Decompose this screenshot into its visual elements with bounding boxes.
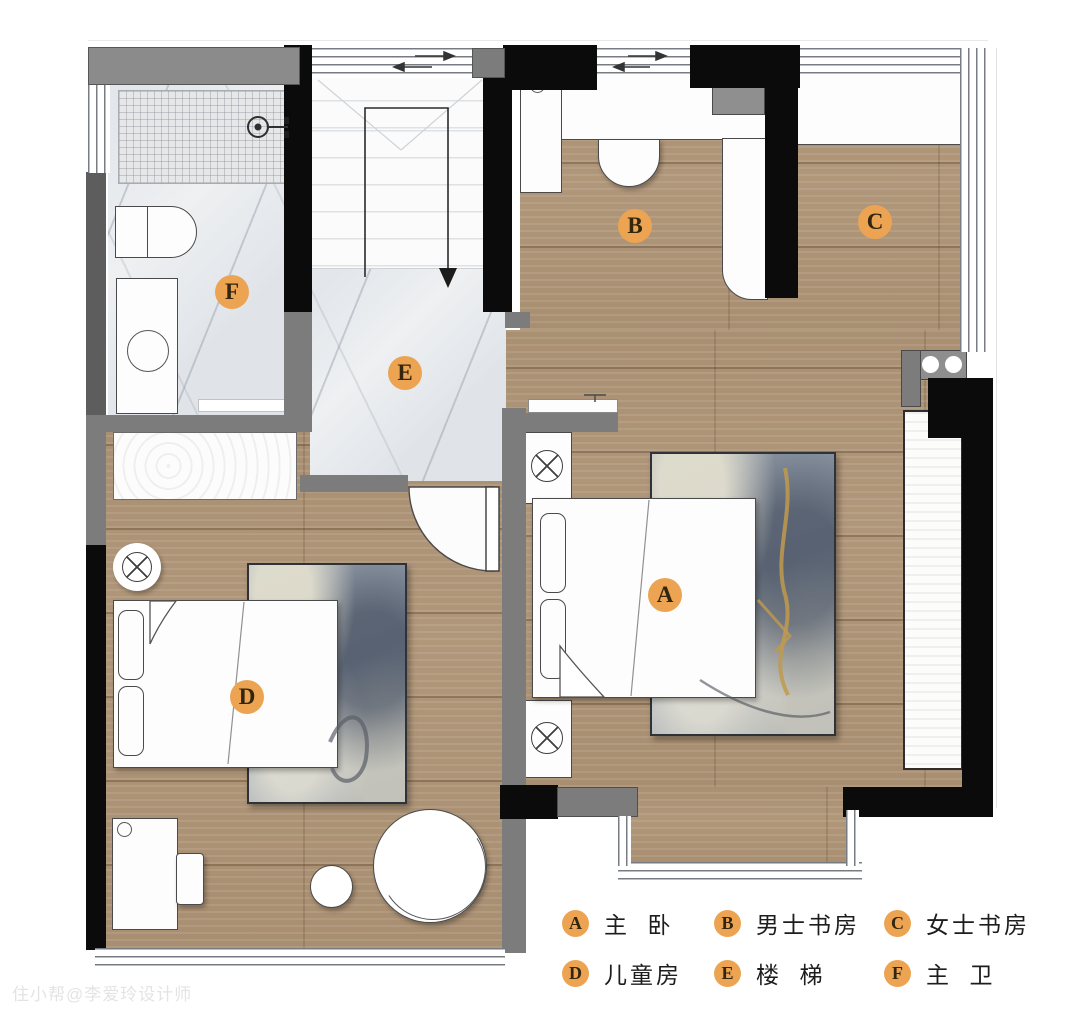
room-marker-childrens-room: D xyxy=(230,680,264,714)
legend-label: 主 卫 xyxy=(926,956,996,990)
window-stair-sliding xyxy=(312,48,472,74)
bay-window-right xyxy=(846,810,859,866)
legend-badge: C xyxy=(884,910,911,937)
legend-label: 男士书房 xyxy=(756,906,860,940)
legend-item-master-bedroom: A 主 卧 xyxy=(562,906,674,940)
bath-shelf xyxy=(198,399,294,412)
wall xyxy=(502,818,526,953)
wall-bedroom-divider xyxy=(502,408,526,788)
pillow xyxy=(118,686,144,756)
legend-item-childrens-room: D 儿童房 xyxy=(562,956,682,990)
legend-item-master-bathroom: F 主 卫 xyxy=(884,956,996,990)
legend-label: 楼 梯 xyxy=(756,956,826,990)
wall-landing-divider xyxy=(300,475,408,492)
stair-treads xyxy=(312,78,483,270)
pillow xyxy=(118,610,144,680)
stool xyxy=(310,865,353,908)
wall-post xyxy=(472,48,505,78)
room-marker-master-bedroom: A xyxy=(648,578,682,612)
sink-icon xyxy=(945,356,962,373)
bay-window-left xyxy=(618,816,631,866)
console-shelf xyxy=(528,399,618,413)
round-sink xyxy=(127,330,169,372)
wall xyxy=(525,413,618,432)
childrens-wardrobe xyxy=(113,432,297,500)
window-bathroom xyxy=(88,85,110,173)
room-marker-stairs: E xyxy=(388,356,422,390)
window-childrens-bottom xyxy=(95,948,505,972)
window-study-c-top xyxy=(797,48,983,74)
study-b-side-desk xyxy=(722,138,768,300)
desk-lamp-icon xyxy=(117,822,132,837)
window-study-c-right xyxy=(960,48,988,352)
lamp-icon xyxy=(531,722,563,754)
legend-badge: F xyxy=(884,960,911,987)
shower-area xyxy=(118,90,287,184)
pillow xyxy=(540,599,566,679)
wall xyxy=(500,785,558,819)
childrens-bed xyxy=(113,600,338,768)
toilet-bowl xyxy=(147,206,197,258)
wall xyxy=(86,422,106,545)
legend-badge: B xyxy=(714,910,741,937)
room-marker-womens-study: C xyxy=(858,205,892,239)
wall xyxy=(962,405,993,810)
wall-top-bathroom xyxy=(88,47,300,85)
tall-wardrobe xyxy=(903,410,963,770)
legend-label: 女士书房 xyxy=(926,906,1030,940)
wall xyxy=(284,312,312,420)
floor-plan: A B C D E F A 主 卧 B 男士书房 C 女士书房 D 儿童房 E … xyxy=(0,0,1080,1017)
legend-badge: D xyxy=(562,960,589,987)
bay-window-floor xyxy=(618,787,848,864)
wall-study-divider xyxy=(765,45,798,298)
study-c-desk xyxy=(797,73,962,145)
toilet-tank xyxy=(115,206,149,258)
legend-badge: A xyxy=(562,910,589,937)
pillow xyxy=(540,513,566,593)
bay-window-bottom xyxy=(618,862,862,882)
legend-item-mens-study: B 男士书房 xyxy=(714,906,860,940)
wall-stub xyxy=(505,312,530,328)
wall xyxy=(503,45,597,90)
wall xyxy=(284,45,312,312)
watermark: 住小帮@李爱玲设计师 xyxy=(12,980,192,1005)
vanity-post xyxy=(901,350,921,407)
wall xyxy=(86,172,106,422)
wall xyxy=(483,75,512,312)
wall xyxy=(843,787,993,817)
legend-badge: E xyxy=(714,960,741,987)
wall-bath-divider xyxy=(86,415,312,432)
legend-label: 主 卧 xyxy=(604,906,674,940)
desk-chair xyxy=(176,853,204,905)
wall xyxy=(557,787,638,817)
window-study-sliding xyxy=(597,48,690,74)
legend-item-stairs: E 楼 梯 xyxy=(714,956,826,990)
outer-frame-line xyxy=(88,40,988,41)
wall xyxy=(86,545,106,950)
legend-item-womens-study: C 女士书房 xyxy=(884,906,1030,940)
outer-frame-line xyxy=(996,48,997,808)
room-marker-mens-study: B xyxy=(618,209,652,243)
lamp-icon xyxy=(531,450,563,482)
sink-icon xyxy=(922,356,939,373)
legend-label: 儿童房 xyxy=(604,956,682,990)
room-marker-master-bathroom: F xyxy=(215,275,249,309)
lamp-icon xyxy=(122,552,152,582)
round-lounge-chair xyxy=(373,809,487,923)
